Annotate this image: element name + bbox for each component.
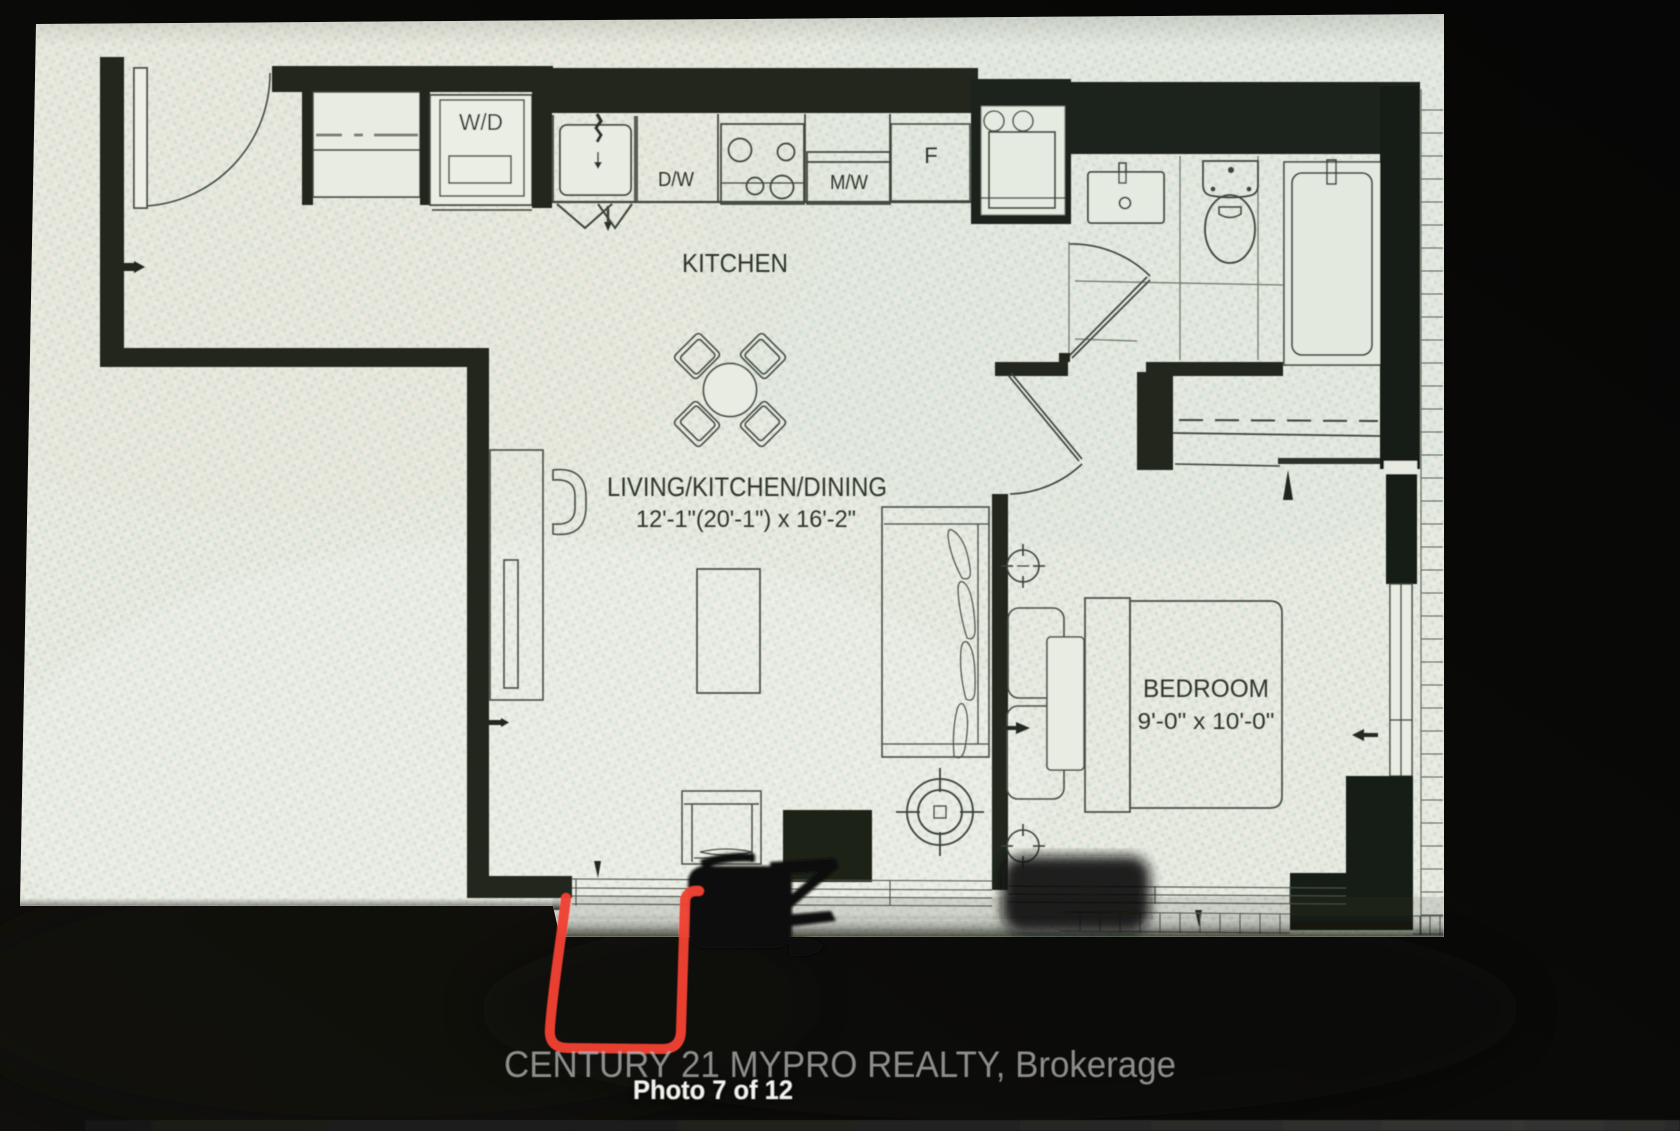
svg-text:M/W: M/W — [830, 172, 868, 194]
svg-text:BEDROOM: BEDROOM — [1143, 675, 1269, 703]
svg-text:F: F — [924, 143, 937, 168]
svg-text:LIVING/KITCHEN/DINING: LIVING/KITCHEN/DINING — [607, 472, 887, 502]
svg-text:KITCHEN: KITCHEN — [682, 248, 788, 278]
svg-text:W/D: W/D — [459, 109, 503, 135]
svg-text:CENTURY 21 MYPRO REALTY, Broke: CENTURY 21 MYPRO REALTY, Brokerage — [504, 1044, 1176, 1085]
svg-text:D/W: D/W — [658, 169, 694, 191]
svg-text:Photo 7 of 12: Photo 7 of 12 — [633, 1075, 793, 1105]
svg-text:9'-0" x 10'-0": 9'-0" x 10'-0" — [1138, 708, 1275, 734]
svg-text:12'-1"(20'-1") x 16'-2": 12'-1"(20'-1") x 16'-2" — [636, 506, 856, 533]
